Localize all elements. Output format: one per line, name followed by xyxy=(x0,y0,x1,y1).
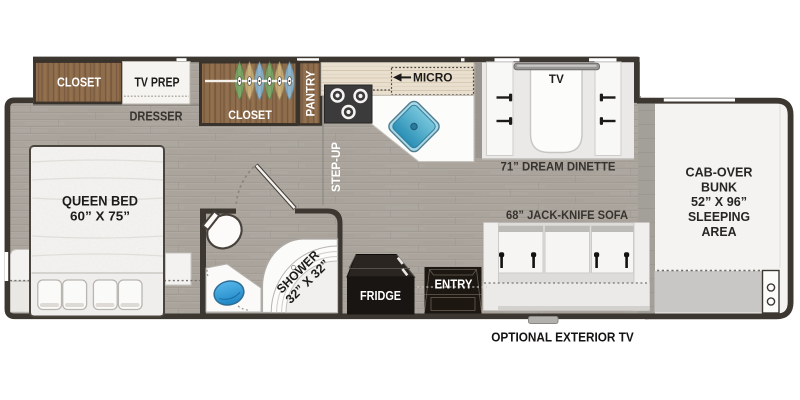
svg-text:CLOSET: CLOSET xyxy=(228,108,272,122)
svg-text:CAB-OVER: CAB-OVER xyxy=(686,165,754,180)
svg-text:71” DREAM DINETTE: 71” DREAM DINETTE xyxy=(501,160,616,174)
svg-text:ENTRY: ENTRY xyxy=(435,277,474,291)
svg-text:DRESSER: DRESSER xyxy=(130,110,183,124)
svg-text:SLEEPING: SLEEPING xyxy=(688,209,750,224)
svg-text:68” JACK-KNIFE SOFA: 68” JACK-KNIFE SOFA xyxy=(506,208,628,222)
svg-text:STEP-UP: STEP-UP xyxy=(329,142,343,192)
svg-text:CLOSET: CLOSET xyxy=(57,75,101,89)
svg-text:MICRO: MICRO xyxy=(413,71,453,85)
svg-text:FRIDGE: FRIDGE xyxy=(360,289,401,303)
svg-text:AREA: AREA xyxy=(702,224,738,239)
svg-text:60” X 75”: 60” X 75” xyxy=(70,208,130,223)
svg-text:TV PREP: TV PREP xyxy=(135,75,180,89)
svg-text:BUNK: BUNK xyxy=(701,179,738,194)
svg-text:PANTRY: PANTRY xyxy=(304,71,318,117)
svg-text:TV: TV xyxy=(549,74,564,86)
svg-text:52” X 96”: 52” X 96” xyxy=(691,194,747,209)
svg-text:OPTIONAL EXTERIOR TV: OPTIONAL EXTERIOR TV xyxy=(491,331,634,345)
svg-text:QUEEN BED: QUEEN BED xyxy=(62,193,138,208)
